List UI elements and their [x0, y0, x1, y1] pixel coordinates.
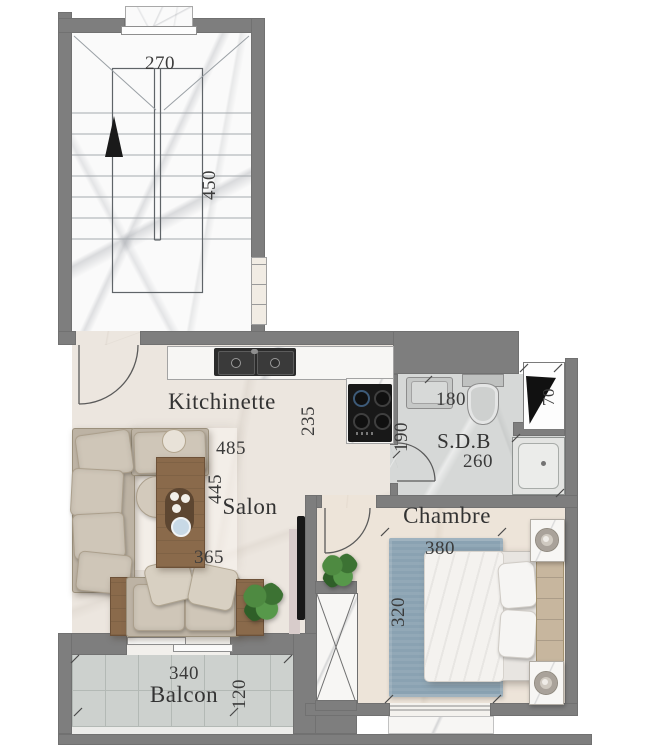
balcony-left-wall	[58, 633, 72, 734]
lamp-icon	[534, 671, 558, 695]
dim-sdb-vanity: 180	[416, 388, 486, 412]
tv	[297, 516, 305, 620]
room-name: Balcon	[150, 682, 218, 707]
dim-text: 380	[425, 538, 455, 559]
room-label-chambre: Chambre	[377, 502, 517, 530]
floor-plan: 270 450 Kitchinette 485 235 Salon 445 36…	[0, 0, 669, 745]
cooktop-burner-3	[353, 413, 370, 430]
stair-top-wall-left	[58, 18, 125, 33]
balcony-edge-strip	[72, 727, 293, 734]
stair-top-window-frame	[121, 26, 197, 35]
dim-stair-depth: 450	[198, 150, 222, 220]
dim-chambre-width: 380	[405, 537, 475, 561]
dim-text: 120	[229, 679, 250, 709]
plant-icon	[321, 552, 359, 590]
bedroom-window	[390, 703, 490, 716]
sliding-door-panel-right	[173, 644, 233, 652]
dim-kitchinette-depth: 235	[297, 386, 321, 456]
dim-balcon-depth: 120	[228, 659, 252, 729]
cooktop-knobs	[356, 432, 376, 435]
kitchen-faucet	[251, 349, 258, 354]
kitchen-sink-drain-left	[231, 358, 241, 368]
cooktop-burner-1	[353, 390, 370, 407]
wardrobe-cap-bottom	[315, 700, 357, 711]
dim-text: 365	[194, 547, 224, 568]
dim-text: 270	[145, 53, 175, 74]
dim-chambre-depth: 320	[387, 577, 411, 647]
cooktop-burner-4	[374, 413, 391, 430]
bed-duvet	[424, 551, 504, 682]
shower-drain	[541, 461, 546, 466]
stair-right-wall-upper	[251, 18, 265, 258]
bed-pillow	[497, 560, 538, 609]
salon-top-wall-right	[140, 331, 398, 345]
room-name: Chambre	[403, 503, 491, 528]
dim-text: 320	[388, 597, 409, 627]
stair-left-wall	[58, 12, 72, 345]
right-exterior-wall	[565, 358, 578, 716]
stair-side-window	[251, 257, 267, 325]
cooktop-burner-2	[374, 390, 391, 407]
lamp-icon	[535, 528, 559, 552]
dim-salon-depth: 445	[204, 454, 228, 524]
room-label-kitchinette: Kitchinette	[152, 388, 292, 416]
wardrobe	[316, 593, 358, 703]
bed-pillow	[497, 609, 537, 659]
dim-text: 235	[298, 406, 319, 436]
bathroom-top-wall	[393, 331, 519, 374]
dim-sdb-width: 260	[443, 450, 513, 474]
entry-threshold	[76, 331, 140, 345]
bedroom-door-threshold	[322, 495, 376, 508]
dim-text: 260	[463, 451, 493, 472]
dim-text: 445	[205, 474, 226, 504]
room-label-salon: Salon	[180, 493, 320, 521]
bedroom-window-sill	[388, 716, 494, 734]
room-name: Salon	[223, 494, 278, 519]
dim-duct-width: 70	[537, 362, 561, 432]
dim-text: 70	[539, 388, 558, 406]
staircase-floor	[72, 33, 251, 331]
salon-top-wall-left	[58, 331, 76, 345]
dim-stair-width: 270	[125, 52, 195, 76]
kitchen-sink-drain-right	[270, 358, 280, 368]
plant-icon	[242, 581, 285, 624]
bottom-edge-band	[58, 734, 592, 745]
dim-text: 450	[199, 170, 220, 200]
side-table-round	[162, 429, 186, 453]
dim-text: 180	[436, 389, 466, 410]
dim-salon-width: 365	[174, 546, 244, 570]
tray-cup	[170, 492, 179, 501]
sofa-cushion	[70, 468, 124, 519]
room-name: Kitchinette	[168, 389, 276, 414]
